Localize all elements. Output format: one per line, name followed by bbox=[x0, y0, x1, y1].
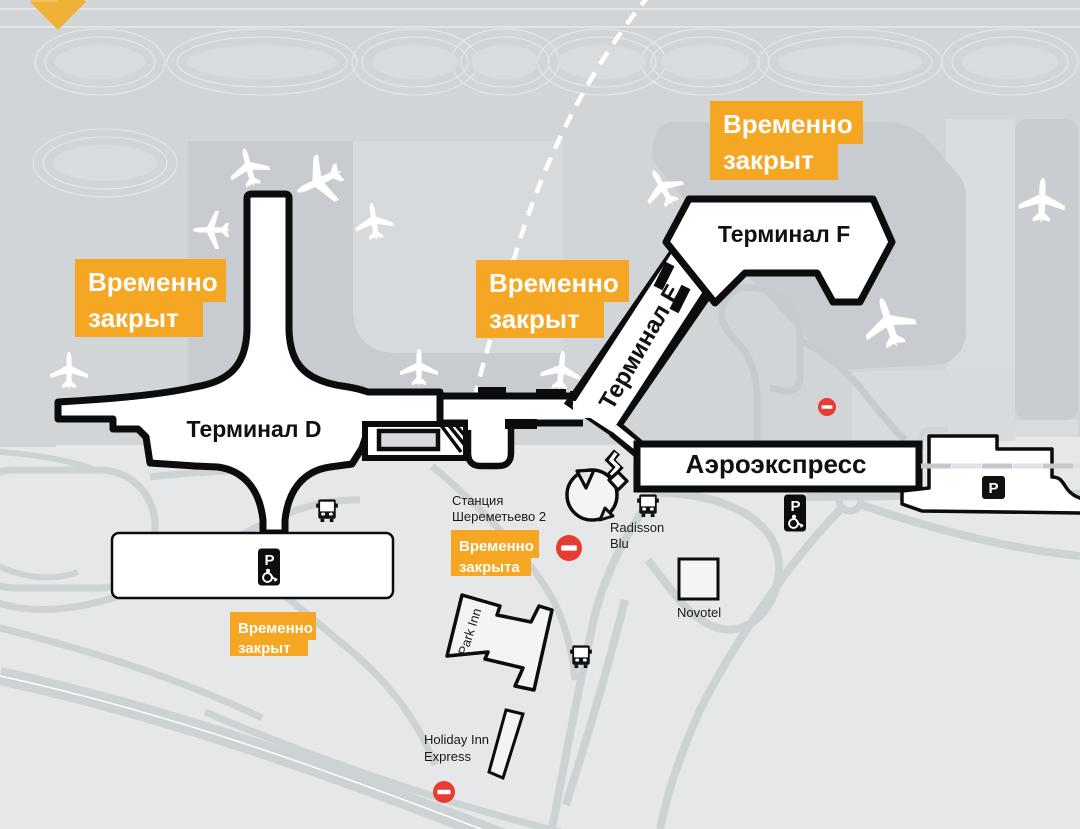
svg-text:закрыта: закрыта bbox=[459, 559, 520, 576]
svg-text:Express: Express bbox=[424, 749, 471, 764]
svg-text:Станция: Станция bbox=[452, 493, 503, 508]
svg-text:закрыт: закрыт bbox=[723, 145, 814, 175]
svg-text:закрыт: закрыт bbox=[238, 640, 290, 657]
svg-text:P: P bbox=[988, 480, 998, 497]
svg-text:Blu: Blu bbox=[610, 536, 629, 551]
svg-text:Временно: Временно bbox=[88, 267, 218, 297]
svg-text:Novotel: Novotel bbox=[677, 605, 721, 620]
svg-text:Временно: Временно bbox=[723, 109, 853, 139]
svg-text:Holiday Inn: Holiday Inn bbox=[424, 732, 489, 747]
svg-text:Терминал D: Терминал D bbox=[187, 416, 322, 442]
svg-text:закрыт: закрыт bbox=[489, 304, 580, 334]
svg-text:Шереметьево 2: Шереметьево 2 bbox=[452, 509, 546, 524]
svg-text:Временно: Временно bbox=[489, 268, 619, 298]
svg-text:Временно: Временно bbox=[238, 620, 313, 637]
svg-text:Radisson: Radisson bbox=[610, 520, 664, 535]
svg-text:Аэроэкспресс: Аэроэкспресс bbox=[686, 449, 867, 479]
svg-text:Терминал F: Терминал F bbox=[718, 221, 850, 247]
svg-text:закрыт: закрыт bbox=[88, 303, 179, 333]
svg-text:Временно: Временно bbox=[459, 538, 534, 555]
